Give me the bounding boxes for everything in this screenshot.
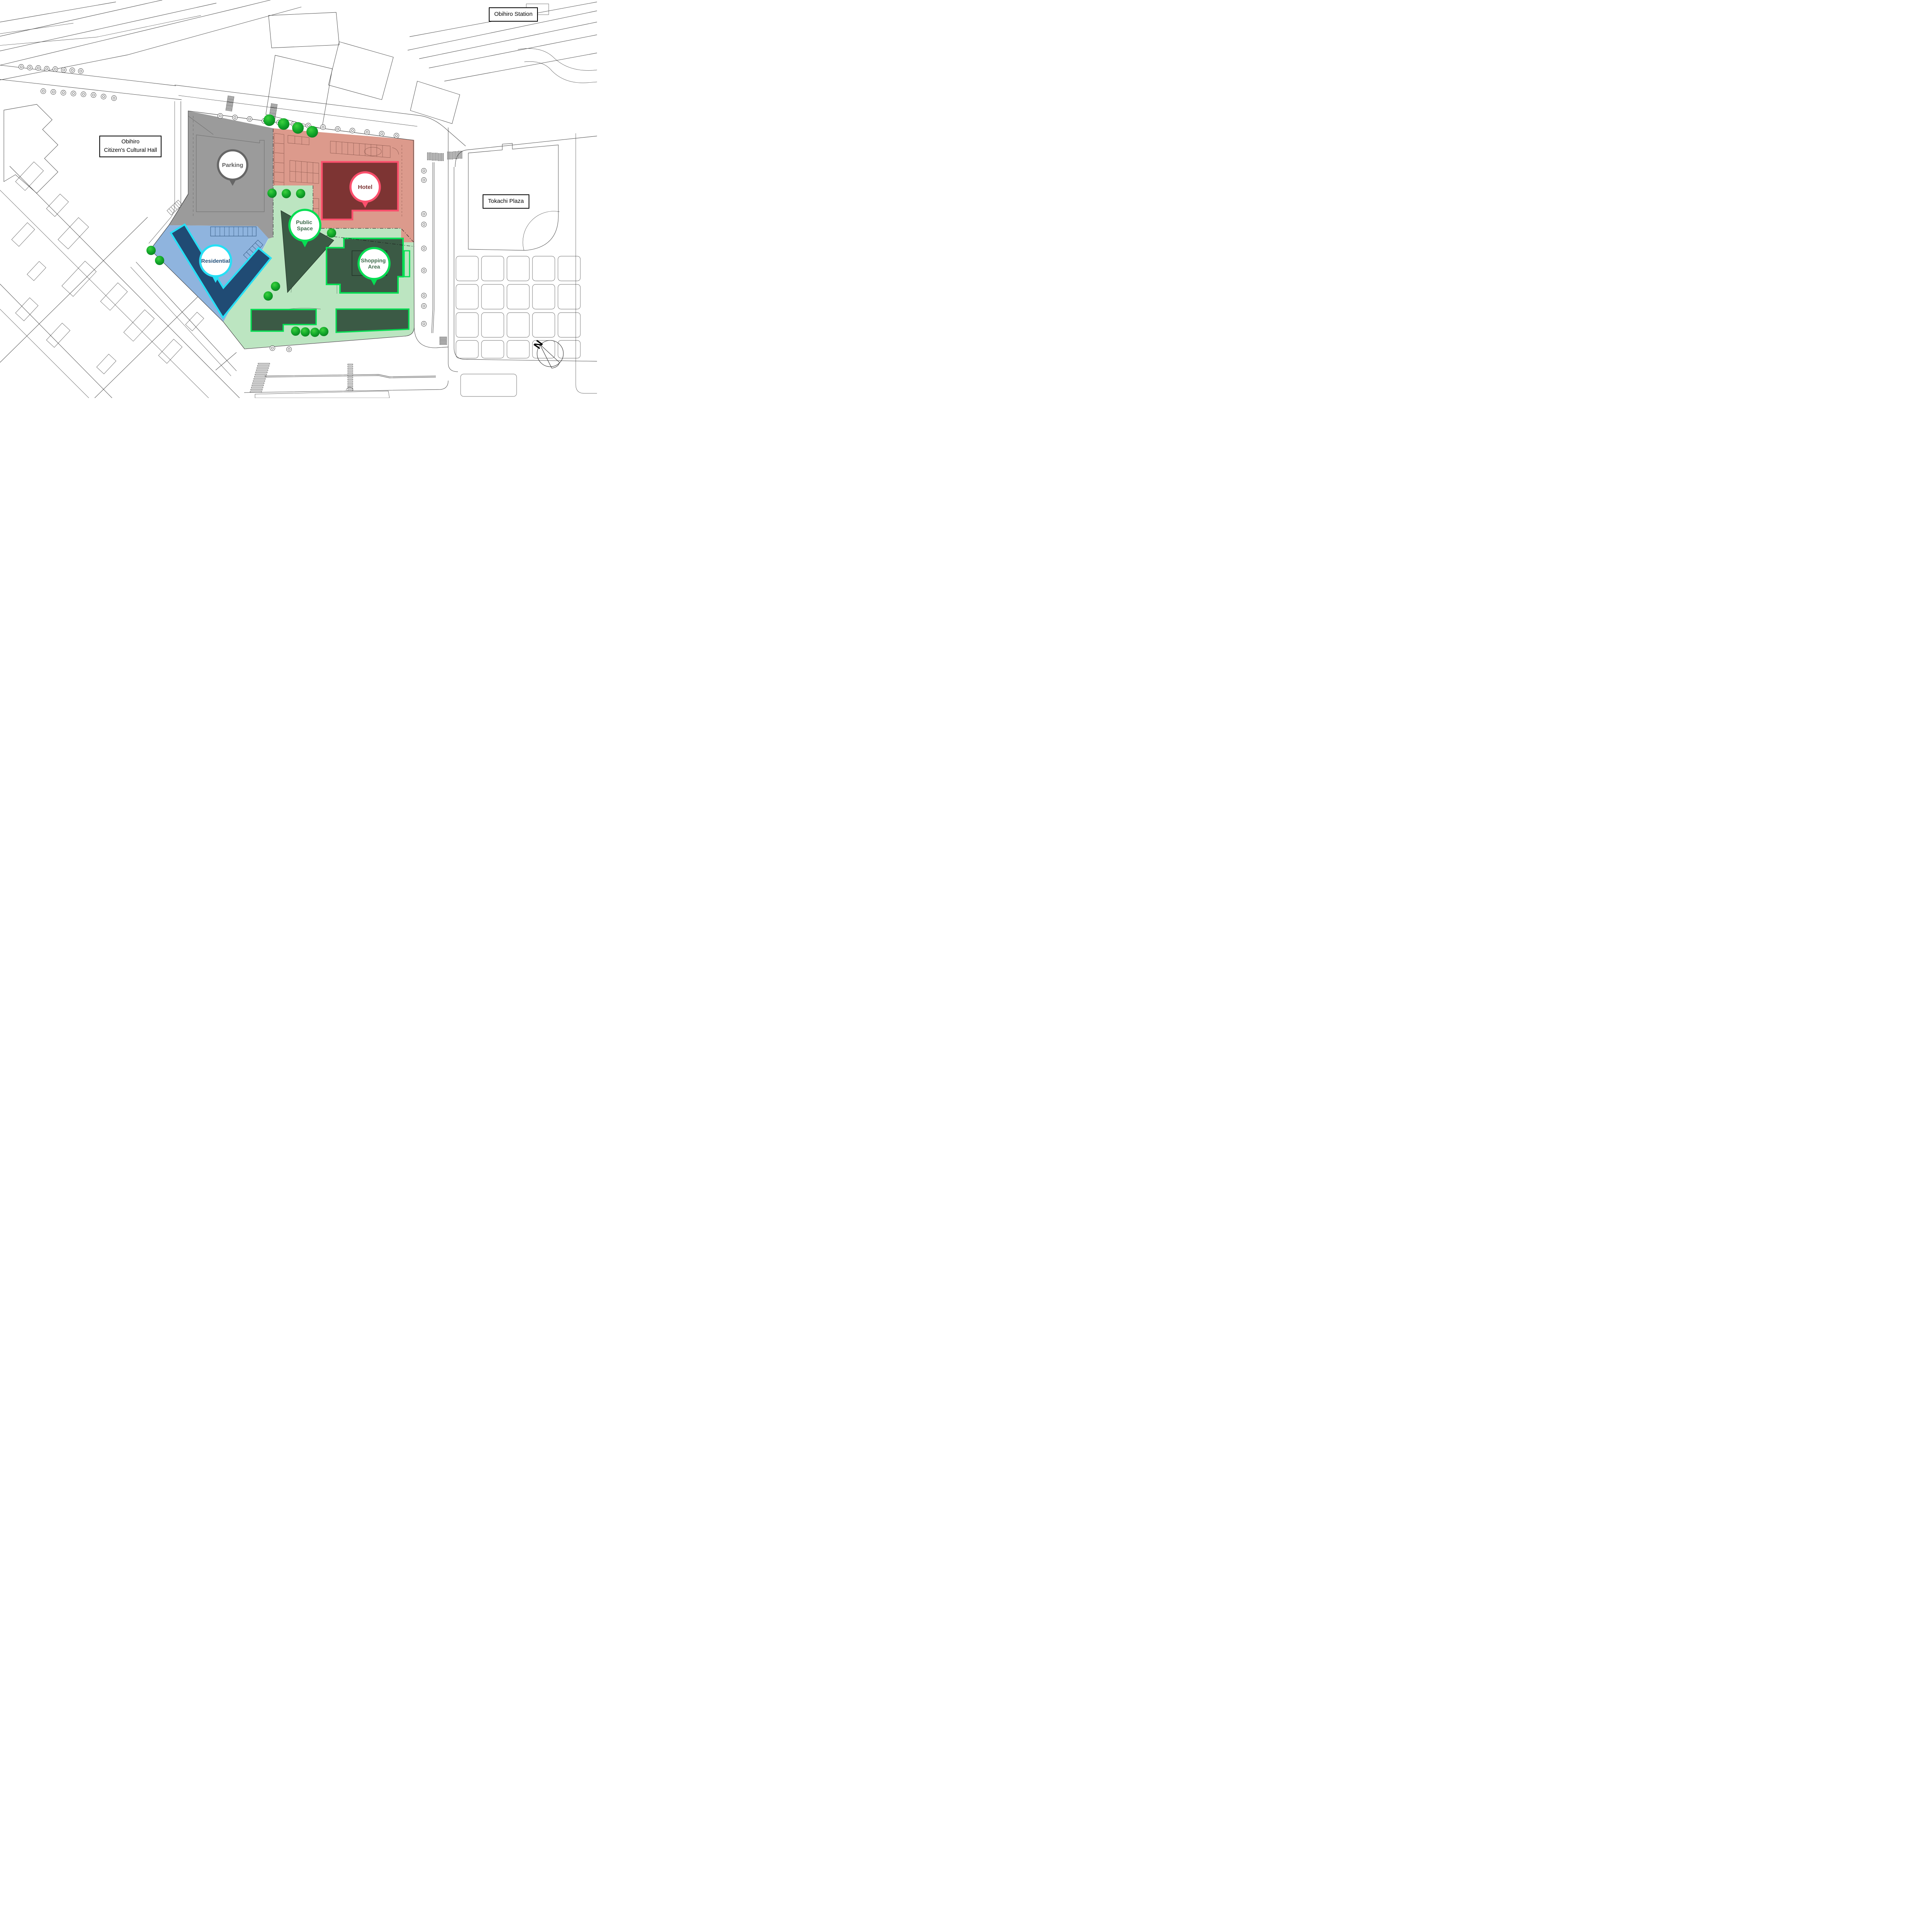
obihiro-station-label-text: Obihiro Station: [494, 11, 532, 17]
parking-balloon-label: Parking: [222, 162, 243, 168]
shopping-building-southeast: [336, 309, 409, 332]
tokachi-plaza-block: [456, 143, 580, 358]
site-plan-stage: Parking Hotel Public Space Residential S…: [0, 0, 597, 398]
cultural-hall-block: [4, 104, 182, 215]
obihiro-station-label: Obihiro Station: [489, 7, 538, 22]
cultural-hall-label-line1: Obihiro: [121, 139, 139, 145]
public-space-label-line2: Space: [297, 225, 313, 231]
tokachi-plaza-label: Tokachi Plaza: [483, 194, 529, 209]
hotel-balloon-label: Hotel: [358, 184, 372, 190]
shopping-area-label-line2: Area: [368, 264, 380, 270]
svg-text:Public Space: Public Space: [296, 219, 314, 231]
compass: N: [531, 338, 563, 368]
crosswalk-right-road-bottom: [440, 337, 447, 345]
compass-north-label: N: [531, 338, 545, 351]
crosswalk-bottom-left: [250, 363, 270, 392]
tokachi-plaza-label-text: Tokachi Plaza: [488, 198, 524, 204]
crosswalk-top-left: [226, 96, 234, 111]
cultural-hall-label: Obihiro Citizen's Cultural Hall: [99, 136, 162, 157]
crosswalk-right-road: [427, 151, 462, 161]
public-space-label-line1: Public: [296, 219, 312, 225]
cultural-hall-label-line2: Citizen's Cultural Hall: [104, 147, 157, 153]
bottom-right-outlines: [255, 374, 517, 398]
shopping-area-label-line1: Shopping: [361, 257, 386, 264]
crosswalk-bottom-center: [348, 364, 353, 391]
surrounding-buildings-top: [266, 12, 460, 129]
residential-balloon-label: Residential: [201, 258, 230, 264]
